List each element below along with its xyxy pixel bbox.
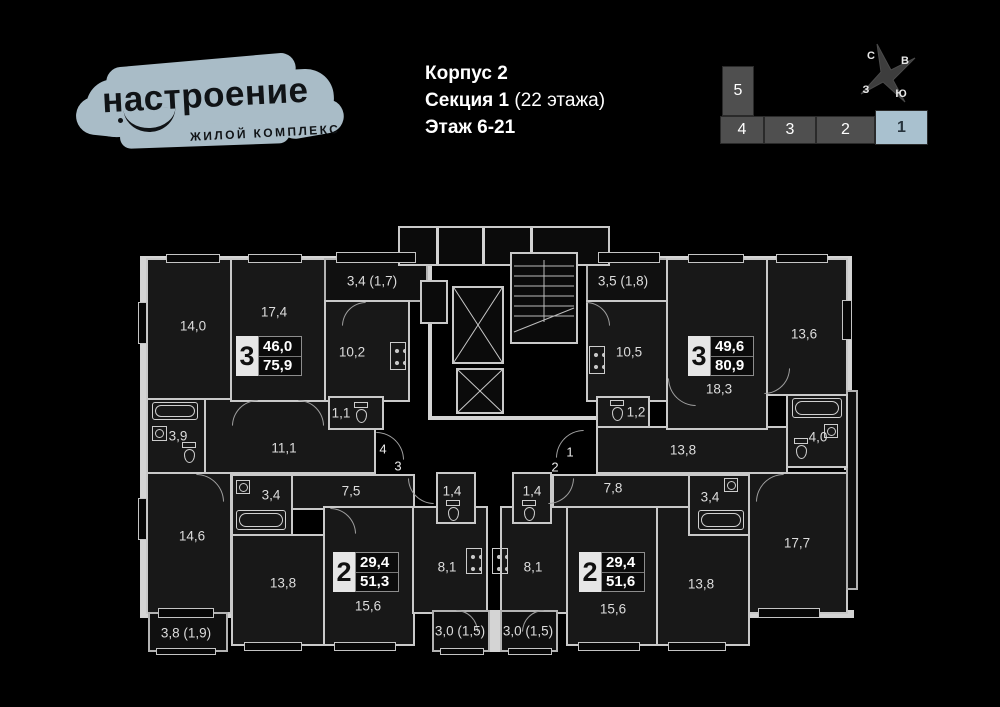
unit-badge-apt1[interactable]: 3 49,6 80,9 [688,336,754,376]
floor-range: Этаж 6-21 [425,117,515,138]
compass-west-label: З [863,84,870,96]
stove-icon [390,342,406,370]
wall-segment [482,228,485,264]
room-label-17-4: 17,4 [261,305,287,320]
stairs-icon [510,252,578,344]
room-label-14-6: 14,6 [179,529,205,544]
unit-living-area: 29,4 [356,554,398,573]
entrance-number-4: 4 [379,442,386,457]
room-label-1-4-right: 1,4 [523,484,542,499]
section-title: Секция 1 [425,90,509,111]
compass-north-label: С [867,50,875,62]
window-mark [776,254,828,263]
sink-icon [724,478,738,492]
unit-total-area: 51,3 [356,573,398,591]
room-label-3-0-right: 3,0 (1,5) [503,624,553,639]
unit-living-area: 46,0 [259,338,301,357]
minimap-section-4-label: 4 [738,121,747,139]
room-label-10-5: 10,5 [616,345,642,360]
minimap-section-5-label: 5 [734,82,743,100]
window-mark [688,254,744,263]
toilet-icon [354,402,368,424]
compass-south-label: Ю [895,88,906,100]
room-label-15-6-right: 15,6 [600,602,626,617]
room-label-bath-3-4-right: 3,4 [701,490,720,505]
room-label-15-6-left: 15,6 [355,599,381,614]
elevator-icon [452,286,504,364]
minimap-section-5[interactable]: 5 [722,66,754,116]
sink-icon [152,426,167,441]
bathtub-icon [698,510,744,530]
bathtub-icon [152,402,198,420]
unit-living-area: 49,6 [711,338,753,357]
compass-icon [853,36,921,112]
window-mark [668,642,726,651]
room-label-8-1-right: 8,1 [524,560,543,575]
room-label-1-2: 1,2 [627,405,646,420]
unit-rooms-count: 3 [236,336,258,376]
window-mark [842,300,852,340]
stove-icon [466,548,482,574]
room-label-13-6: 13,6 [791,327,817,342]
window-mark [244,642,302,651]
minimap-section-2-label: 2 [841,121,850,139]
minimap-section-4[interactable]: 4 [720,116,764,144]
room-label-3-9: 3,9 [169,429,188,444]
room-label-7-8: 7,8 [604,481,623,496]
window-mark [336,252,416,263]
unit-living-area: 29,4 [602,554,644,573]
minimap-section-2[interactable]: 2 [816,116,875,144]
room-label-7-5: 7,5 [342,484,361,499]
room-label-13-8-left: 13,8 [270,576,296,591]
room-label-4-0: 4,0 [809,430,828,445]
stove-icon [589,346,605,374]
room-label-1-1: 1,1 [332,406,351,421]
stove-icon [492,548,508,574]
unit-rooms-count: 2 [333,552,355,592]
room-label-bath-3-4-left: 3,4 [262,488,281,503]
bathtub-icon [792,398,842,418]
toilet-icon [182,442,196,464]
toilet-icon [794,438,808,460]
window-mark [758,608,820,618]
compass-east-label: В [901,55,909,67]
wall-segment [428,416,610,420]
floorplan-page: настроение жилой комплекс Корпус 2 Секци… [0,0,1000,707]
window-mark [248,254,302,263]
unit-total-area: 80,9 [711,357,753,375]
toilet-icon [446,500,460,522]
unit-total-area: 75,9 [259,357,301,375]
entrance-number-1: 1 [566,445,573,460]
entrance-number-3: 3 [394,459,401,474]
room-label-1-4-left: 1,4 [443,484,462,499]
plan-info: Корпус 2 Секция 1 (22 этажа) Этаж 6-21 [425,60,605,141]
room-label-13-8-right: 13,8 [688,577,714,592]
room-label-3-4-1-7: 3,4 (1,7) [347,274,397,289]
window-mark [156,648,216,655]
window-mark [158,608,214,618]
minimap-section-3-label: 3 [786,121,795,139]
unit-badge-apt3[interactable]: 2 29,4 51,3 [333,552,399,592]
entrance-number-2: 2 [551,460,558,475]
window-mark [138,302,147,344]
unit-badge-apt2[interactable]: 2 29,4 51,6 [579,552,645,592]
toilet-icon [610,400,624,422]
room-label-8-1-left: 8,1 [438,560,457,575]
elevator-icon [456,368,504,414]
bathtub-icon [236,510,286,530]
logo-smile-dot-icon [118,118,123,123]
room-label-17-7: 17,7 [784,536,810,551]
window-mark [598,252,660,263]
unit-rooms-count: 2 [579,552,601,592]
window-mark [166,254,220,263]
section-floors: (22 этажа) [514,90,605,111]
window-mark [138,498,147,540]
window-mark [440,648,484,655]
window-mark [578,642,640,651]
wall-segment [436,228,439,264]
minimap-section-1-active[interactable]: 1 [875,110,928,145]
room-label-14-0: 14,0 [180,319,206,334]
toilet-icon [522,500,536,522]
unit-badge-apt4[interactable]: 3 46,0 75,9 [236,336,302,376]
unit-rooms-count: 3 [688,336,710,376]
room-17-4 [230,258,326,402]
shaft-box [420,280,448,324]
building-title: Корпус 2 [425,63,508,84]
window-mark [334,642,396,651]
room-label-3-0-left: 3,0 (1,5) [435,624,485,639]
room-label-3-5-1-8: 3,5 (1,8) [598,274,648,289]
room-label-10-2: 10,2 [339,345,365,360]
room-label-11-1: 11,1 [271,441,296,456]
minimap-section-3[interactable]: 3 [764,116,816,144]
room-label-hall-13-8: 13,8 [670,443,696,458]
logo: настроение жилой комплекс [80,52,342,156]
room-label-18-3: 18,3 [706,382,732,397]
room-label-3-8-1-9: 3,8 (1,9) [161,626,211,641]
unit-total-area: 51,6 [602,573,644,591]
window-mark [508,648,552,655]
sink-icon [236,480,250,494]
minimap-section-1-label: 1 [897,119,906,137]
core-top-block [398,226,610,266]
